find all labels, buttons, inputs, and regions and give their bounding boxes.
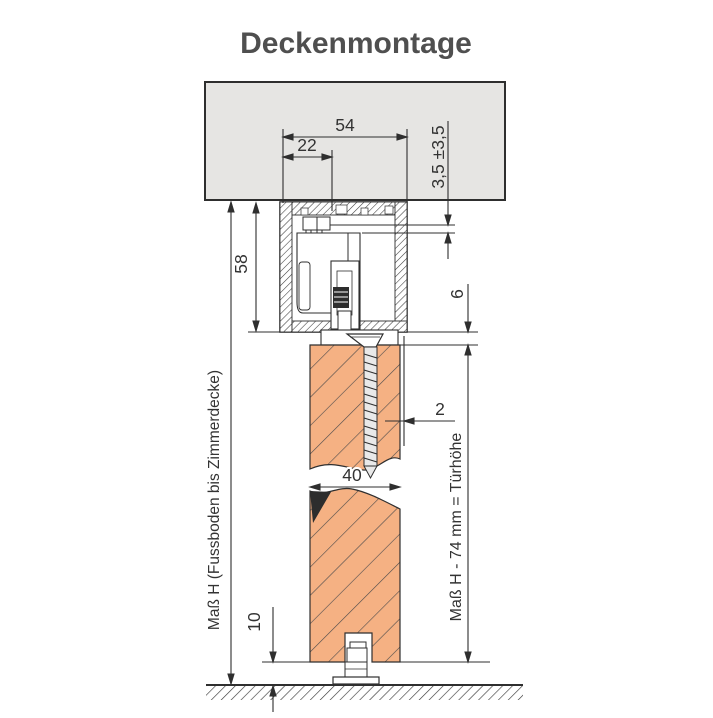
dim-door-thickness-value: 40 [342, 465, 362, 485]
door-panel-upper-section [310, 345, 400, 470]
label-door-height-formula: Maß H - 74 mm = Türhöhe [448, 433, 465, 622]
dim-fixing-offset-value: 22 [297, 135, 316, 155]
page-title: Deckenmontage [240, 27, 472, 60]
dim-adjustment-value: 3,5 ±3,5 [428, 125, 448, 188]
ceiling-mount-diagram: Deckenmontage [0, 0, 713, 713]
door-panel-lower-section [310, 488, 400, 662]
dim-door-offset-value: 2 [435, 399, 445, 419]
label-mass-h-room-height: Maß H (Fussboden bis Zimmerdecke) [206, 370, 223, 630]
dim-rail-width-value: 54 [335, 115, 355, 135]
ceiling-slab [205, 82, 505, 200]
floor [206, 685, 523, 700]
dim-floor-clearance-value: 10 [244, 612, 264, 632]
running-track-section [280, 202, 407, 335]
dim-rail-height-value: 58 [231, 254, 251, 273]
dim-rail-door-gap-value: 6 [447, 289, 467, 299]
